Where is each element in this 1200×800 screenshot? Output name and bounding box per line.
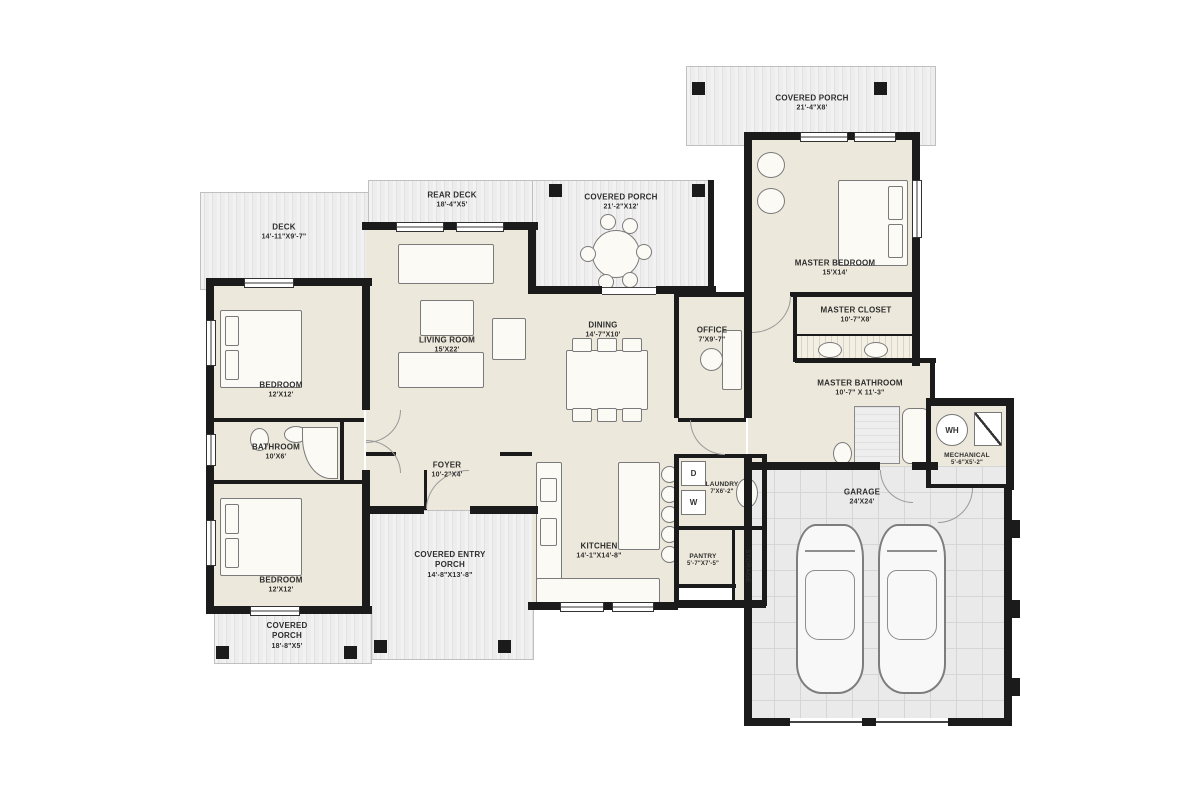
wall [795, 358, 936, 363]
wall [744, 132, 752, 418]
armchair [757, 152, 785, 178]
shower [854, 406, 900, 464]
window [396, 222, 444, 232]
garage-door [876, 718, 948, 726]
wall [674, 292, 750, 297]
wall [744, 462, 880, 470]
porch-post [374, 640, 387, 653]
chair [580, 246, 596, 262]
sliding-door [602, 287, 656, 295]
chair [597, 338, 617, 352]
wall [793, 296, 797, 362]
pillow [888, 186, 903, 220]
electrical-panel [974, 412, 1002, 446]
kitchen-counter [536, 578, 660, 604]
chair [622, 272, 638, 288]
wall [674, 292, 679, 418]
chair [622, 408, 642, 422]
label-rear-deck: REAR DECK18'-4"X5' [427, 190, 476, 209]
pillow [225, 538, 239, 568]
dryer-label: D [691, 469, 697, 478]
chair [600, 214, 616, 230]
garage-door-line [876, 721, 948, 723]
porch-post [549, 184, 562, 197]
wall [912, 462, 938, 470]
pillow [225, 316, 239, 346]
window [244, 278, 294, 288]
water-heater-label: WH [945, 426, 958, 435]
kitchen-island [618, 462, 660, 550]
wall [912, 132, 920, 366]
window [206, 320, 216, 366]
wall-pilaster [1012, 600, 1020, 618]
chair [572, 338, 592, 352]
wall [362, 222, 538, 230]
label-pantry: PANTRY5'-7"X7'-5" [687, 553, 719, 569]
wall-pilaster [1012, 520, 1020, 538]
porch-post [874, 82, 887, 95]
washer-label: W [690, 498, 698, 507]
label-storage: STORAGE [743, 549, 751, 582]
kitchen-sink [540, 478, 557, 502]
car-cabin [805, 570, 855, 640]
wall [470, 506, 538, 514]
car-hood-line [887, 550, 937, 552]
label-foyer: FOYER10'-2"X4' [431, 460, 462, 479]
floor-plan: D W WH [0, 0, 1200, 800]
label-laundry: LAUNDRY7'X6'-2" [706, 481, 739, 497]
window [250, 606, 300, 616]
wall [362, 506, 424, 514]
washer: W [681, 490, 706, 515]
garage-door [790, 718, 862, 726]
label-bedroom-top: BEDROOM12'X12' [259, 380, 302, 399]
wall [708, 180, 714, 292]
porch-post [498, 640, 511, 653]
window [456, 222, 504, 232]
armchair [757, 188, 785, 214]
label-kitchen: KITCHEN14'-1"X14'-8" [576, 541, 621, 560]
wall [528, 286, 602, 294]
wall [214, 480, 364, 484]
covered-entry-porch-area [368, 510, 534, 660]
pillow [225, 504, 239, 534]
dryer: D [681, 461, 706, 486]
window [854, 132, 896, 142]
car [878, 524, 946, 694]
wall [678, 584, 736, 588]
sofa [398, 352, 484, 388]
chair [597, 408, 617, 422]
wall [362, 470, 370, 614]
porch-post [344, 646, 357, 659]
label-covered-entry-porch: COVERED ENTRY PORCH14'-8"X13'-8" [407, 550, 493, 580]
chair [622, 218, 638, 234]
car [796, 524, 864, 694]
label-covered-porch-top: COVERED PORCH21'-4"X8' [775, 93, 848, 112]
label-bathroom: BATHROOM10'X6' [252, 442, 300, 461]
wall [744, 462, 752, 726]
sofa [398, 244, 494, 284]
label-dining: DINING14'-7"X10' [585, 320, 620, 339]
wall [340, 422, 344, 480]
cooktop [540, 518, 557, 546]
wall [790, 292, 912, 297]
pillow [225, 350, 239, 380]
label-master-bedroom: MASTER BEDROOM15'X14' [795, 258, 876, 277]
vanity-sink [818, 342, 842, 358]
vanity-sink [864, 342, 888, 358]
label-covered-porch-bottom: COVERED PORCH18'-8"X5' [257, 621, 317, 651]
wall [678, 600, 766, 608]
wall-pilaster [1012, 678, 1020, 696]
wall [732, 530, 735, 604]
wall [762, 454, 767, 606]
chair [622, 338, 642, 352]
window [560, 602, 604, 612]
window [206, 520, 216, 566]
window [612, 602, 654, 612]
window [912, 180, 922, 238]
porch-post [216, 646, 229, 659]
car-cabin [887, 570, 937, 640]
wall [1006, 398, 1014, 490]
label-garage: GARAGE24'X24' [844, 487, 880, 506]
label-deck: DECK14'-11"X9'-7" [262, 222, 307, 241]
wall [500, 452, 532, 456]
label-mechanical: MECHANICAL5'-6"X5'-2" [944, 452, 990, 468]
wall [678, 526, 766, 530]
label-bedroom-bottom: BEDROOM12'X12' [259, 575, 302, 594]
chair [572, 408, 592, 422]
desk-chair [700, 348, 723, 371]
dining-table [566, 350, 648, 410]
porch-post [692, 184, 705, 197]
wall [1004, 486, 1012, 726]
round-table [592, 230, 640, 278]
porch-post [692, 82, 705, 95]
window [206, 434, 216, 466]
pillow [888, 224, 903, 258]
wall [926, 398, 931, 488]
label-office: OFFICE7'X9'-7" [697, 325, 728, 344]
car-hood-line [805, 550, 855, 552]
label-covered-porch-center: COVERED PORCH21'-2"X12' [584, 192, 657, 211]
wall [926, 398, 1014, 406]
wall [528, 222, 536, 294]
label-master-closet: MASTER CLOSET10'-7"X8' [820, 305, 891, 324]
wall [930, 358, 935, 402]
label-master-bathroom: MASTER BATHROOM10'-7" X 11'-3" [817, 378, 903, 397]
coffee-table [420, 300, 474, 336]
garage-door-line [790, 721, 862, 723]
label-living-room: LIVING ROOM15'X22' [419, 335, 475, 354]
wall [795, 334, 912, 336]
wall [362, 278, 370, 410]
chair [636, 244, 652, 260]
window [800, 132, 848, 142]
armchair [492, 318, 526, 360]
water-heater: WH [936, 414, 968, 446]
